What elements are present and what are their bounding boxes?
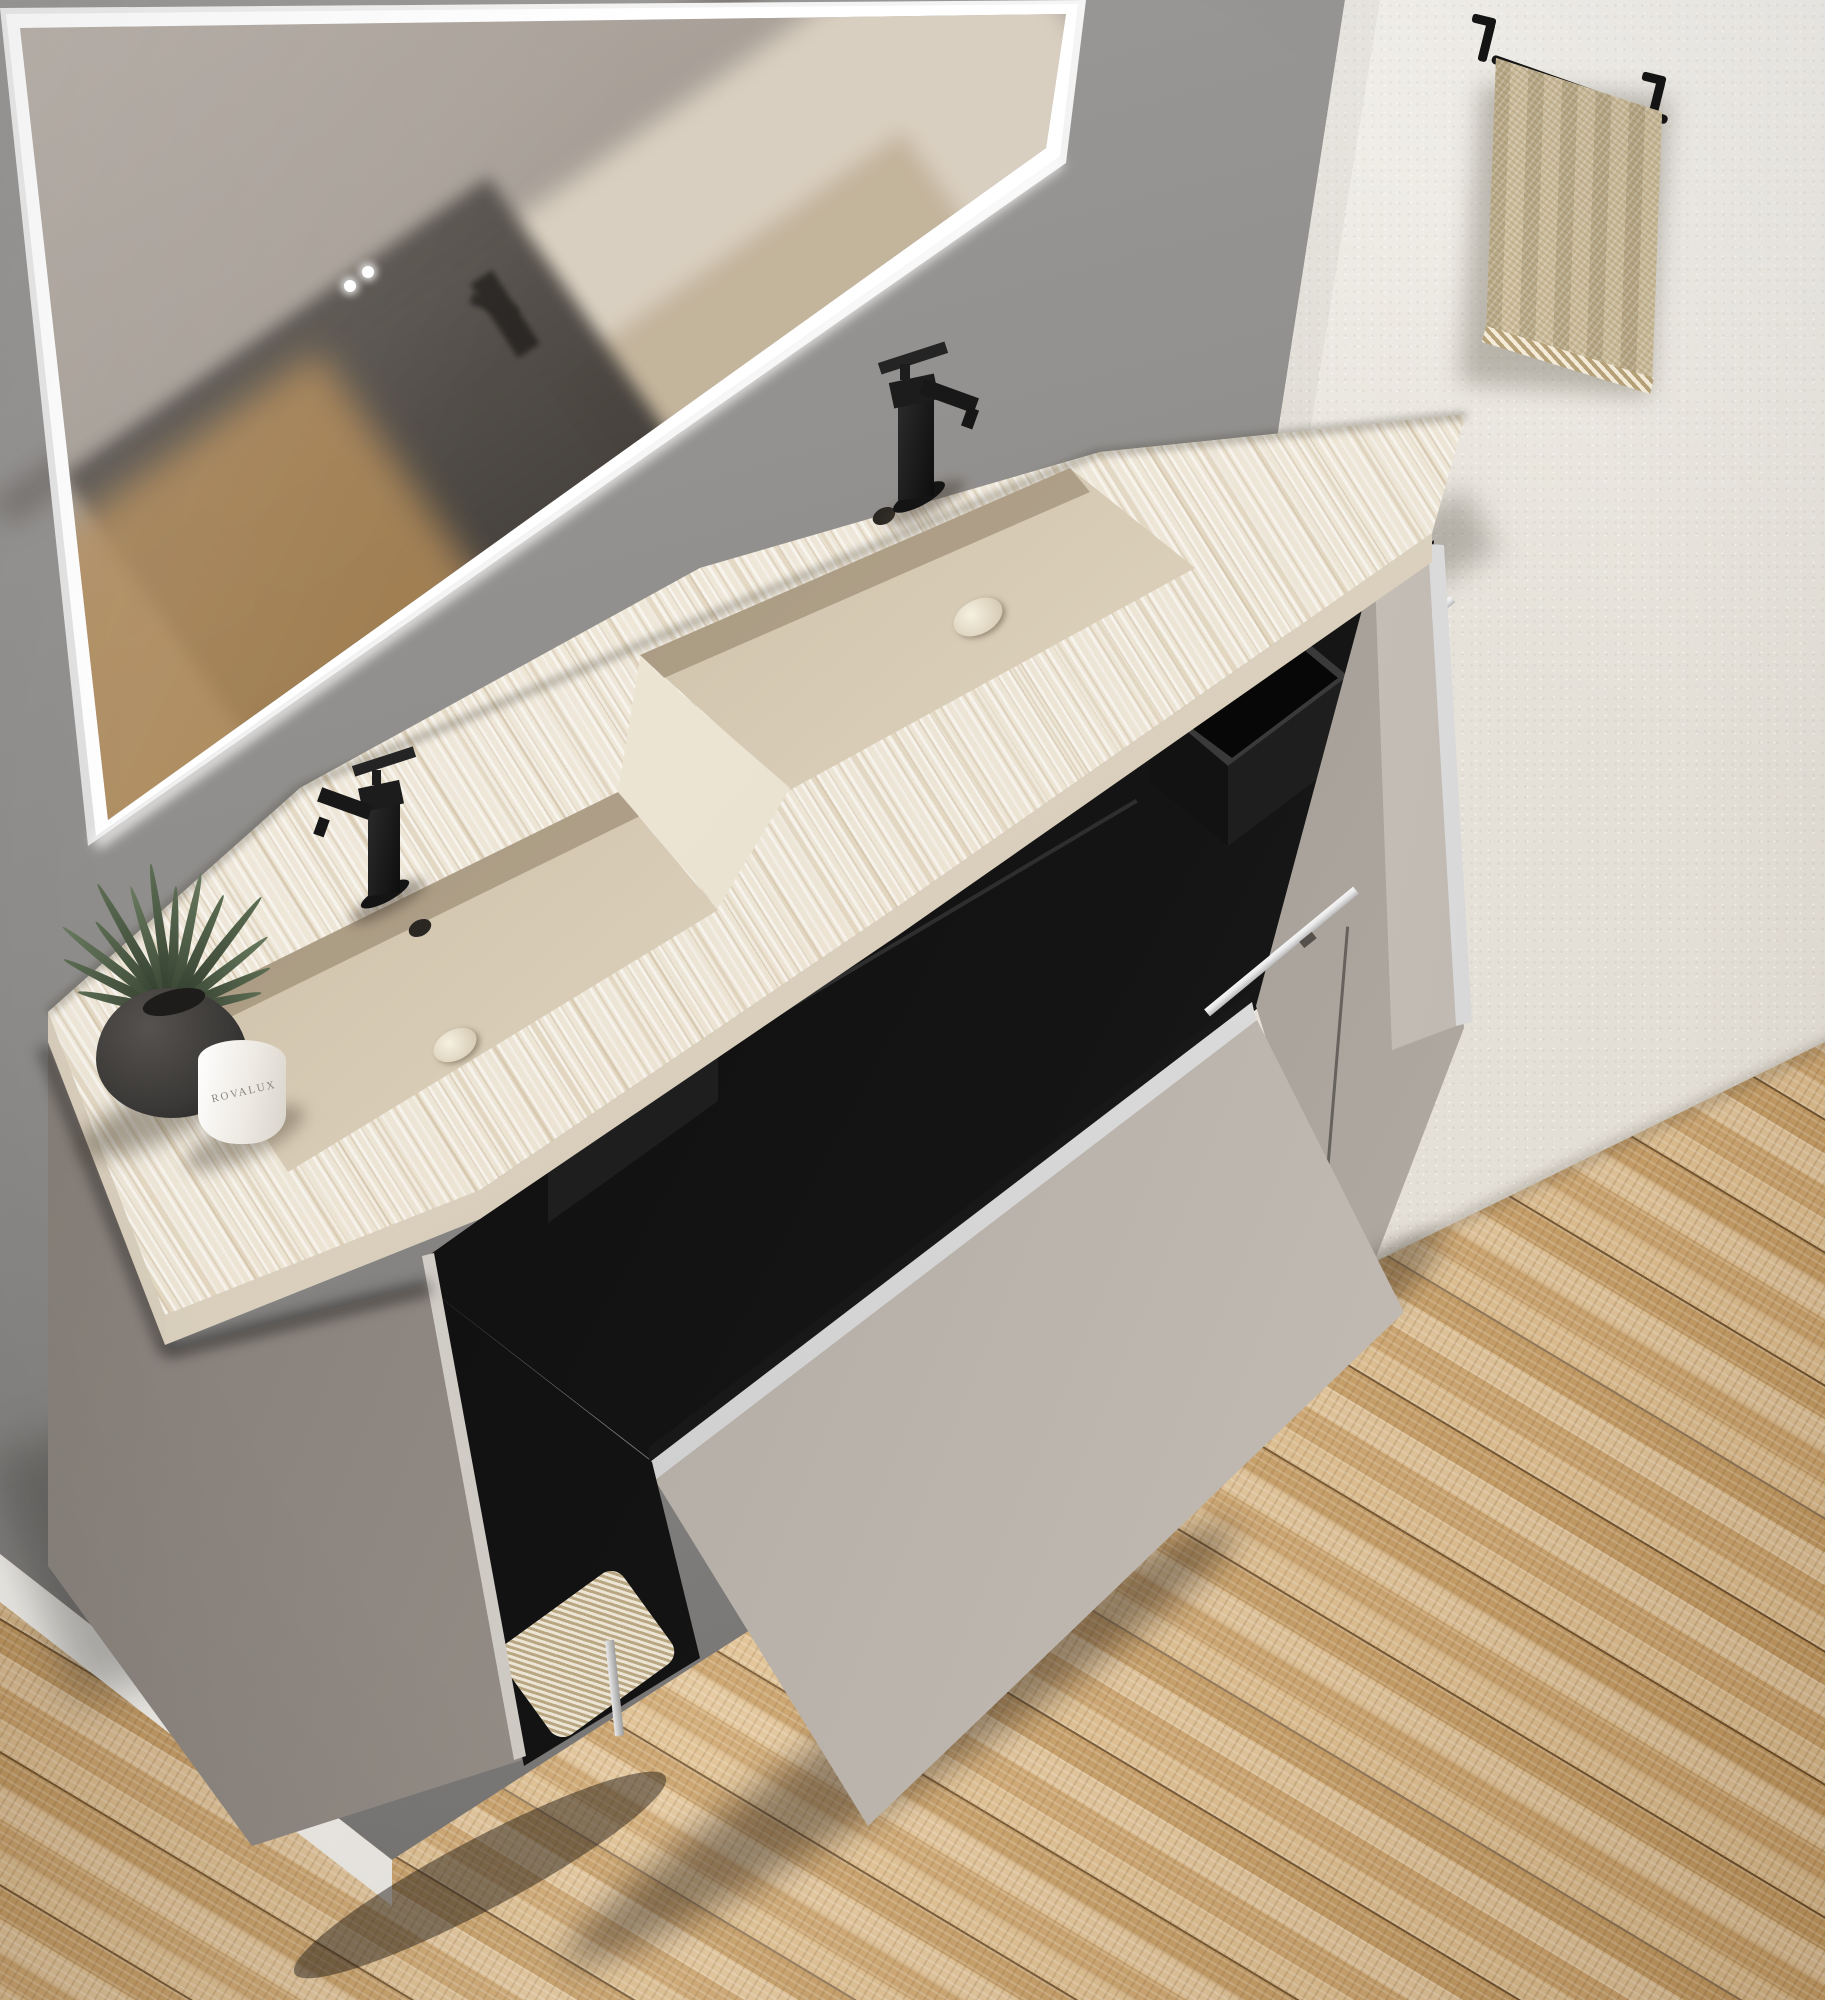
vignette-overlay xyxy=(0,0,1825,2000)
bathroom-scene: ROVALUX xyxy=(0,0,1825,2000)
